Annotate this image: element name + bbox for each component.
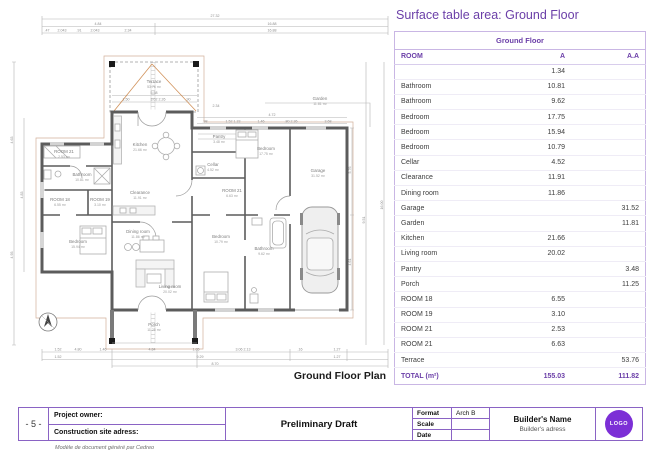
date-value — [452, 430, 489, 440]
generator-note: Modèle de document généré par Cedreo — [55, 445, 154, 451]
room-area-label: 17.75 m² — [259, 152, 274, 156]
dimension-label: 5.58 — [151, 91, 158, 95]
room-label: Garden — [313, 96, 328, 101]
room-area-label: 3.10 m² — [94, 203, 107, 207]
room-area-label: 10.81 m² — [75, 178, 90, 182]
dimension-label: 2.043 — [58, 29, 67, 33]
date-label: Date — [413, 430, 452, 440]
table-row: 1.34 — [395, 64, 646, 79]
room-area-label: 20.02 m² — [163, 290, 178, 294]
room-label: Bathroom — [72, 172, 91, 177]
dimension-label: 4.63 — [10, 137, 14, 144]
room-area-label: 6.63 m² — [226, 194, 239, 198]
table-row: ROOM 216.63 — [395, 337, 646, 352]
table-row: Bedroom15.94 — [395, 125, 646, 140]
table-row: Cellar4.52 — [395, 155, 646, 170]
construction-site-label: Construction site adress: — [49, 425, 225, 441]
dimension-label: .80 2.36 — [285, 120, 298, 124]
total-label: TOTAL (m²) — [395, 368, 504, 385]
format-label: Format — [413, 408, 452, 418]
column-header-a: A — [503, 49, 571, 64]
table-row: Bathroom10.81 — [395, 79, 646, 94]
page-title: Surface table area: Ground Floor — [396, 8, 646, 22]
room-label: Bedroom — [257, 146, 275, 151]
dimension-label: 4.80 — [75, 348, 82, 352]
table-row: Clearance11.91 — [395, 170, 646, 185]
room-label: ROOM 18 — [50, 197, 70, 202]
logo-box: LOGO — [595, 407, 643, 441]
room-label: ROOM 19 — [90, 197, 110, 202]
table-section-title-row: Ground Floor — [395, 32, 646, 50]
room-label: ROOM 21 — [54, 149, 74, 154]
room-label: Bedroom — [69, 239, 87, 244]
date-row: Date — [413, 430, 489, 440]
floor-plan: Terrace53.76 m²Garden11.81 m²Kitchen21.6… — [0, 0, 392, 405]
room-area-label: 31.52 m² — [311, 174, 326, 178]
room-label: Pantry — [213, 134, 226, 139]
table-total-row: TOTAL (m²) 155.03 111.82 — [395, 368, 646, 385]
dimension-label: 1.27 — [334, 348, 341, 352]
dimension-label: 1.52 — [55, 355, 62, 359]
table-row: Pantry3.48 — [395, 261, 646, 276]
table-row: ROOM 193.10 — [395, 307, 646, 322]
dimension-label: 5.76 — [348, 167, 352, 174]
table-row: Garden11.81 — [395, 216, 646, 231]
room-label: Bathroom — [254, 246, 273, 251]
surface-table-panel: Surface table area: Ground Floor Ground … — [394, 8, 646, 385]
dimension-label: 3.06 2.13 — [236, 348, 251, 352]
room-area-label: 11.25 m² — [147, 328, 161, 332]
table-row: Bedroom10.79 — [395, 140, 646, 155]
dimension-label: 3.68 — [325, 120, 332, 124]
table-row: Porch11.25 — [395, 277, 646, 292]
table-row: Terrace53.76 — [395, 353, 646, 368]
dimension-label: 1.05 — [193, 348, 200, 352]
room-area-label: 9.62 m² — [258, 252, 271, 256]
room-area-label: 2.53 m² — [58, 155, 71, 159]
title-block: - 5 - Project owner: Construction site a… — [18, 407, 648, 441]
room-label: Kitchen — [133, 142, 148, 147]
dimension-label: 1.52 — [55, 348, 62, 352]
dimension-label: 3.02 2.26 — [151, 98, 166, 102]
plan-caption: Ground Floor Plan — [230, 370, 386, 382]
dimension-label: 2.043 — [91, 29, 100, 33]
room-area-label: 21.66 m² — [133, 148, 148, 152]
dimension-label: 8.70 — [212, 362, 219, 366]
table-row: ROOM 186.55 — [395, 292, 646, 307]
dimension-label: 4.93 — [10, 252, 14, 259]
page-number: - 5 - — [18, 407, 49, 441]
surface-table: Ground Floor ROOM A A.A 1.34Bathroom10.8… — [394, 31, 646, 385]
dimension-label: .90 — [186, 98, 191, 102]
draft-status: Preliminary Draft — [225, 407, 413, 441]
table-section-title: Ground Floor — [395, 32, 646, 50]
table-row: Dining room11.86 — [395, 186, 646, 201]
total-a: 155.03 — [503, 368, 571, 385]
dimension-label: 16.00 — [380, 201, 384, 210]
room-area-label: 10.79 m² — [214, 240, 229, 244]
surface-table-body: 1.34Bathroom10.81Bathroom9.62Bedroom17.7… — [395, 64, 646, 368]
table-row: Bathroom9.62 — [395, 94, 646, 109]
room-label: Dining room — [126, 229, 150, 234]
format-row: Format Arch B — [413, 408, 489, 419]
dimension-label: 27.32 — [211, 14, 220, 18]
dimension-label: 1.52 1.33 — [226, 120, 241, 124]
builder-box: Builder's Name Builder's adress — [489, 407, 596, 441]
dimension-label: 4.61 — [348, 259, 352, 266]
dimension-label: .47 — [45, 29, 50, 33]
logo: LOGO — [605, 410, 633, 438]
project-owner-label: Project owner: — [49, 408, 225, 425]
dimension-label: 4.84 — [95, 22, 102, 26]
dimension-label: 4.83 — [20, 192, 24, 199]
dimension-label: 1.46 — [258, 120, 265, 124]
compass-icon — [39, 313, 57, 331]
format-box: Format Arch B Scale Date — [412, 407, 490, 441]
dimension-label: .16 — [298, 348, 303, 352]
floor-plan-drawing: Terrace53.76 m²Garden11.81 m²Kitchen21.6… — [0, 0, 392, 405]
car-icon — [300, 207, 340, 293]
owner-box: Project owner: Construction site adress: — [48, 407, 226, 441]
table-row: Bedroom17.75 — [395, 110, 646, 125]
room-label: ROOM 21 — [222, 188, 242, 193]
room-label: Terrace — [147, 79, 162, 84]
dimension-label: 4.72 — [269, 113, 276, 117]
room-label: Bedroom — [212, 234, 230, 239]
room-area-label: 11.81 m² — [313, 102, 327, 106]
room-label: Living room — [159, 284, 182, 289]
room-area-label: 4.52 m² — [207, 168, 220, 172]
room-area-label: 3.48 m² — [213, 140, 226, 144]
table-header-row: ROOM A A.A — [395, 49, 646, 64]
column-header-room: ROOM — [395, 49, 504, 64]
table-row: ROOM 212.53 — [395, 322, 646, 337]
builder-address: Builder's adress — [519, 426, 565, 433]
dimension-label: 2.34 — [125, 29, 132, 33]
room-label: Clearance — [130, 190, 151, 195]
dimension-label: 1.50 — [123, 98, 130, 102]
dimension-label: 9.51 — [362, 217, 366, 224]
scale-label: Scale — [413, 419, 452, 429]
room-area-label: 11.91 m² — [133, 196, 147, 200]
table-row: Living room20.02 — [395, 246, 646, 261]
room-area-label: 15.94 m² — [71, 245, 86, 249]
table-row: Garage31.52 — [395, 201, 646, 216]
dimension-label: .98 — [203, 120, 208, 124]
table-row: Kitchen21.66 — [395, 231, 646, 246]
scale-row: Scale — [413, 419, 489, 430]
dimension-label: 2.34 — [213, 104, 220, 108]
dimension-label: 16.88 — [268, 29, 277, 33]
format-value: Arch B — [452, 408, 489, 418]
dimension-label: 9.29 — [197, 355, 204, 359]
room-area-label: 6.55 m² — [54, 203, 67, 207]
room-label: Cellar — [207, 162, 219, 167]
dimension-label: 16.88 — [268, 22, 277, 26]
dimension-label: 1.46 — [100, 348, 107, 352]
dimension-label: 1.27 — [334, 355, 341, 359]
room-area-label: 11.86 m² — [131, 235, 145, 239]
total-aa: 111.82 — [571, 368, 646, 385]
dimension-label: .91 — [77, 29, 82, 33]
builder-name: Builder's Name — [514, 415, 572, 424]
room-area-label: 53.76 m² — [147, 85, 162, 89]
room-label: Garage — [311, 168, 326, 173]
scale-value — [452, 419, 489, 429]
column-header-aa: A.A — [571, 49, 646, 64]
dimension-label: 4.84 — [149, 348, 156, 352]
room-label: Porch — [148, 322, 160, 327]
